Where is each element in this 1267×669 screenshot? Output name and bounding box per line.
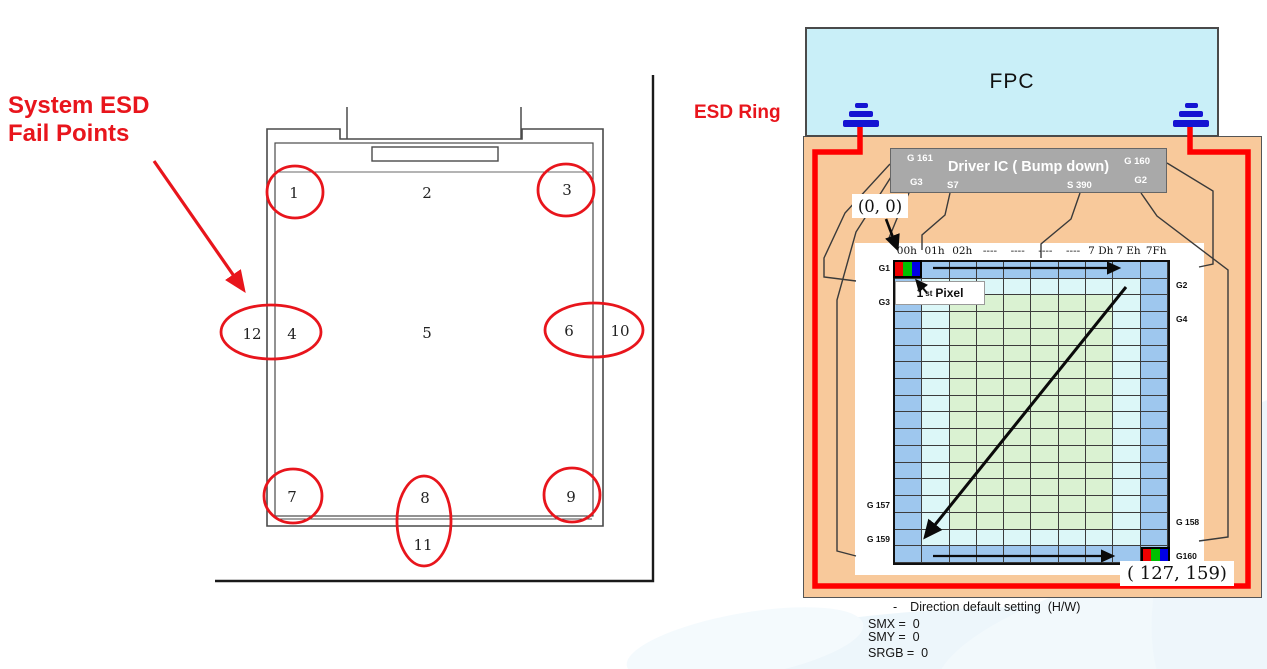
grid-cell [1086,346,1113,363]
grid-cell [1059,279,1086,296]
grid-cell [977,429,1004,446]
column-header: 02h [948,243,976,259]
grid-cell [922,412,949,429]
grid-cell [977,362,1004,379]
grid-cell [1086,530,1113,547]
fail-point-number: 3 [562,181,572,199]
grid-cell [1059,479,1086,496]
pixel-grid [893,260,1170,565]
grid-cell [1141,362,1168,379]
grid-cell [977,346,1004,363]
grid-cell [922,513,949,530]
title-line-1: System ESD [8,92,149,120]
grid-cell [1031,279,1058,296]
column-header: ---- [1032,243,1060,259]
grid-cell [950,396,977,413]
grid-cell [1113,496,1140,513]
grid-cell [1086,479,1113,496]
grid-cell [895,513,922,530]
grid-cell [977,546,1004,563]
grid-cell [1004,279,1031,296]
grid-cell [950,513,977,530]
grid-cell [1141,429,1168,446]
first-pixel-callout: 1stPixel [895,281,985,305]
grid-cell [1113,346,1140,363]
grid-column-headers: 00h01h02h----------------7 Dh7 Eh7Fh [893,243,1170,259]
grid-cell [1141,379,1168,396]
grid-cell [922,530,949,547]
grid-cell [1086,379,1113,396]
fail-point-number: 4 [287,325,297,343]
grid-cell [1059,329,1086,346]
grid-cell [922,329,949,346]
ic-pin-g160: G 160 [1124,156,1150,167]
grid-cell [1031,346,1058,363]
grid-cell [1059,346,1086,363]
grid-cell [1086,412,1113,429]
grid-cell [977,412,1004,429]
page-title: System ESD Fail Points [8,92,149,148]
settings-smy: SMY = 0 [868,631,1080,645]
grid-cell [922,262,949,279]
grid-cell [1059,446,1086,463]
grid-cell [977,496,1004,513]
grid-cell [1086,463,1113,480]
first-pixel-sup: st [925,289,932,298]
fail-point-number: 9 [566,488,576,506]
grid-cell [1059,379,1086,396]
grid-cell [950,262,977,279]
grid-cell [1086,279,1113,296]
grid-cell [950,546,977,563]
grid-cell [950,362,977,379]
grid-cell [895,412,922,429]
grid-cell [1059,546,1086,563]
grid-cell [977,262,1004,279]
fail-point-number: 5 [422,324,432,342]
grid-cell [977,530,1004,547]
grid-cell [1004,546,1031,563]
grid-cell [1086,446,1113,463]
grid-cell [1113,295,1140,312]
grid-cell [1059,412,1086,429]
ic-pin-s390: S 390 [1067,180,1092,191]
grid-cell [1031,295,1058,312]
grid-cell [1113,479,1140,496]
fail-point-number: 6 [564,322,574,340]
grid-cell [977,379,1004,396]
grid-cell [922,429,949,446]
fail-point-number: 10 [610,322,629,340]
grid-cell [1004,329,1031,346]
grid-cell [1086,362,1113,379]
grid-cell [1004,362,1031,379]
settings-text: Direction default setting (H/W) [910,601,1080,615]
grid-cell [1113,412,1140,429]
gate-label-left: G1 [844,263,890,273]
bullet-dash: - [893,601,897,615]
grid-cell [895,446,922,463]
grid-cell [1141,513,1168,530]
grid-cell [922,446,949,463]
grid-cell [1004,446,1031,463]
grid-cell [1141,530,1168,547]
fail-point-number: 2 [422,184,432,202]
grid-cell [1031,412,1058,429]
grid-cell [950,429,977,446]
divider-lines [215,75,653,581]
grid-cell [1031,362,1058,379]
column-header: 01h [921,243,949,259]
first-pixel-word: Pixel [935,286,963,300]
end-coordinate-label: ( 127, 159) [1120,561,1234,586]
driver-ic-box: Driver IC ( Bump down) G 161 G 160 G3 S7… [890,148,1167,193]
grid-cell [950,446,977,463]
grid-cell [1086,546,1113,563]
grid-cell [1004,312,1031,329]
grid-cell [1086,429,1113,446]
grid-cell [977,312,1004,329]
grid-cell [1113,429,1140,446]
column-header: 7 Dh [1087,243,1115,259]
grid-cell [895,362,922,379]
grid-cell [895,379,922,396]
grid-cell [1004,530,1031,547]
grid-cell [1086,513,1113,530]
grid-cell [1059,429,1086,446]
fail-point-ellipses [221,164,643,566]
grid-cell [1113,312,1140,329]
grid-cell [950,346,977,363]
title-line-2: Fail Points [8,120,149,148]
red-subpixel [895,262,903,276]
grid-cell [1004,479,1031,496]
grid-cell [1059,496,1086,513]
grid-cell [922,379,949,396]
grid-cell [895,530,922,547]
grid-cell [922,396,949,413]
gate-label-right: G 158 [1176,517,1228,527]
grid-cell [1113,329,1140,346]
grid-cell [922,362,949,379]
grid-cell [950,530,977,547]
grid-cell [1113,463,1140,480]
grid-cell [1059,396,1086,413]
grid-cell [1141,479,1168,496]
grid-cell [1004,412,1031,429]
grid-cell [1059,463,1086,480]
grid-cell [895,496,922,513]
column-header: ---- [1004,243,1032,259]
green-subpixel [903,262,911,276]
grid-cell [895,546,922,563]
grid-cell [950,379,977,396]
grid-cell [1113,530,1140,547]
grid-cell [1031,329,1058,346]
grid-cell [1031,262,1058,279]
grid-cell [1141,446,1168,463]
grid-cell [1031,446,1058,463]
grid-cell [1059,530,1086,547]
grid-cell [1113,396,1140,413]
grid-cell [895,479,922,496]
grid-cell [922,479,949,496]
grid-cell [950,463,977,480]
grid-cell [1031,379,1058,396]
grid-cell [1141,329,1168,346]
grid-cell [895,463,922,480]
grid-cell [1086,295,1113,312]
grid-cell [1031,396,1058,413]
column-header: 7 Eh [1115,243,1143,259]
grid-cell [1004,513,1031,530]
fail-point-number: 1 [289,184,299,202]
grid-cell [1141,312,1168,329]
gate-label-left: G 157 [844,500,890,510]
esd-ring-label: ESD Ring [694,102,781,124]
gate-label-left: G3 [844,297,890,307]
grid-cell [1004,346,1031,363]
fail-point-number: 7 [287,488,297,506]
grid-cell [1031,312,1058,329]
grid-cell [1031,496,1058,513]
grid-cell [1141,262,1168,279]
grid-cell [1004,463,1031,480]
gate-label-right: G2 [1176,280,1228,290]
grid-cell [1113,513,1140,530]
grid-cell [977,513,1004,530]
grid-cell [895,312,922,329]
column-header: 00h [893,243,921,259]
grid-cell [1059,362,1086,379]
column-header: ---- [976,243,1004,259]
grid-cell [1086,329,1113,346]
blue-subpixel [912,262,920,276]
ic-pin-g3: G3 [910,177,923,188]
grid-cell [1059,312,1086,329]
grid-cell [1004,295,1031,312]
grid-cell [895,329,922,346]
grid-cell [1113,279,1140,296]
ic-pin-s7: S7 [947,180,959,191]
gate-label-left: G 159 [844,534,890,544]
gate-label-right: G4 [1176,314,1228,324]
origin-coordinate-label: (0, 0) [852,194,908,218]
grid-cell [1113,262,1140,279]
settings-smx: SMX = 0 [868,618,1080,632]
grid-cell [950,329,977,346]
grid-cell [1004,396,1031,413]
grid-cell [977,329,1004,346]
grid-cell [922,312,949,329]
grid-cell [1004,262,1031,279]
column-header: ---- [1059,243,1087,259]
grid-cell [922,546,949,563]
ic-pin-g2: G2 [1134,175,1147,186]
grid-cell [977,479,1004,496]
grid-cell [1031,546,1058,563]
grid-cell [1141,346,1168,363]
grid-cell [977,396,1004,413]
grid-cell [1031,429,1058,446]
fpc-box: FPC [805,27,1219,137]
grid-cell [1086,312,1113,329]
grid-cell [1031,530,1058,547]
grid-cell [895,429,922,446]
first-pixel-num: 1 [917,286,924,300]
grid-cell [950,412,977,429]
grid-cell [1141,496,1168,513]
grid-cell [950,479,977,496]
grid-cell [1031,479,1058,496]
fpc-label: FPC [990,70,1035,94]
speaker-slot [372,147,498,161]
grid-cell [922,496,949,513]
fail-point-number: 12 [242,325,261,343]
grid-cell [977,463,1004,480]
device-outline [267,107,603,526]
gate-label-right: G160 [1176,551,1228,561]
grid-cell [1086,262,1113,279]
first-pixel-swatch [893,260,922,278]
grid-cell [1141,295,1168,312]
grid-cell [922,346,949,363]
grid-cell [1004,379,1031,396]
direction-settings-note: - Direction default setting (H/W) SMX = … [868,601,1080,660]
grid-cell [1059,513,1086,530]
grid-cell [1059,295,1086,312]
grid-cell [1113,446,1140,463]
grid-cell [1004,429,1031,446]
settings-srgb: SRGB = 0 [868,647,1080,661]
ic-pin-g161: G 161 [907,153,933,164]
grid-cell [1113,379,1140,396]
grid-cell [1141,396,1168,413]
grid-cell [950,312,977,329]
grid-cell [1031,463,1058,480]
fail-point-number: 8 [420,489,430,507]
grid-cell [1086,496,1113,513]
grid-cell [895,396,922,413]
grid-cell [1004,496,1031,513]
grid-cell [1141,412,1168,429]
fail-point-number: 11 [413,536,432,554]
fail-points-arrow [154,161,243,289]
grid-cell [1086,396,1113,413]
grid-cell [895,346,922,363]
settings-line-1: - Direction default setting (H/W) [868,601,1080,615]
grid-cell [1031,513,1058,530]
grid-cell [922,463,949,480]
column-header: 7Fh [1142,243,1170,259]
slide-canvas: System ESD Fail Points FPC ESD Ring [0,0,1267,669]
grid-cell [1113,362,1140,379]
grid-cell [950,496,977,513]
grid-cell [1141,279,1168,296]
grid-cell [977,446,1004,463]
grid-cell [1059,262,1086,279]
grid-cell [1141,463,1168,480]
